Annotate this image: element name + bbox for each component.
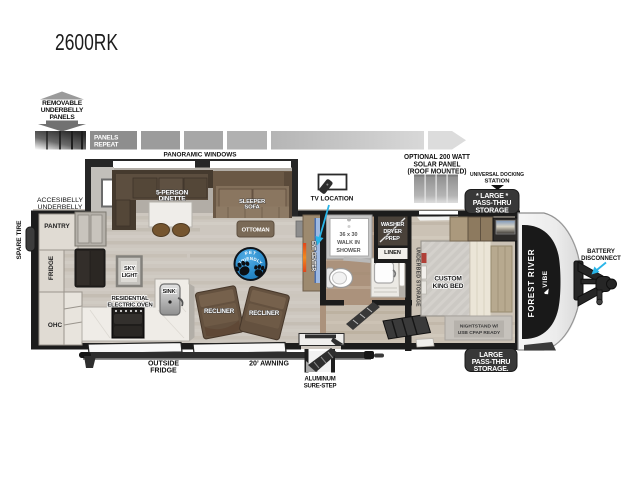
svg-text:LARGE: LARGE xyxy=(479,352,503,359)
svg-text:BATTERY: BATTERY xyxy=(587,249,615,255)
svg-text:NIGHTSTAND W/: NIGHTSTAND W/ xyxy=(460,324,499,330)
svg-text:VIBE: VIBE xyxy=(542,270,549,287)
svg-text:PANTRY: PANTRY xyxy=(44,223,70,230)
svg-text:PREP: PREP xyxy=(385,236,400,242)
svg-text:UNIVERSAL DOCKING: UNIVERSAL DOCKING xyxy=(470,172,524,178)
svg-text:UNDERBED STORAGE: UNDERBED STORAGE xyxy=(415,247,421,307)
svg-text:ACCESIBELLY: ACCESIBELLY xyxy=(37,197,83,204)
svg-text:REMOVABLE: REMOVABLE xyxy=(42,100,83,107)
svg-text:TV LOCATION: TV LOCATION xyxy=(311,196,354,203)
svg-text:20’ AWNING: 20’ AWNING xyxy=(249,361,289,368)
svg-text:SHOWER: SHOWER xyxy=(336,248,360,254)
svg-text:USB CPAP READY: USB CPAP READY xyxy=(458,330,501,336)
svg-text:OUTSIDE: OUTSIDE xyxy=(148,361,179,368)
svg-text:PANELS: PANELS xyxy=(49,114,75,121)
svg-text:SURE-STEP: SURE-STEP xyxy=(304,384,337,390)
svg-text:DINETTE: DINETTE xyxy=(159,196,187,203)
svg-text:SPARE TIRE: SPARE TIRE xyxy=(16,220,23,260)
svg-text:* LARGE *: * LARGE * xyxy=(476,193,509,200)
svg-text:SKY: SKY xyxy=(124,266,135,272)
svg-text:(ROOF MOUNTED): (ROOF MOUNTED) xyxy=(408,166,468,175)
svg-text:STORAGE: STORAGE xyxy=(475,207,509,214)
svg-text:DISCONNECT: DISCONNECT xyxy=(581,256,621,262)
svg-text:PANORAMIC WINDOWS: PANORAMIC WINDOWS xyxy=(163,152,237,159)
svg-text:PASS-THRU: PASS-THRU xyxy=(472,359,511,366)
svg-text:LINEN: LINEN xyxy=(384,250,401,256)
svg-text:UNDERBELLY: UNDERBELLY xyxy=(41,107,84,114)
svg-text:WALK IN: WALK IN xyxy=(337,240,360,246)
svg-text:CUSTOM: CUSTOM xyxy=(434,276,462,283)
svg-text:SOFA: SOFA xyxy=(244,205,260,211)
svg-text:OTTOMAN: OTTOMAN xyxy=(242,228,270,234)
svg-text:STORAGE.: STORAGE. xyxy=(474,366,509,373)
svg-text:2600RK: 2600RK xyxy=(55,29,118,55)
svg-text:LIGHT: LIGHT xyxy=(122,273,139,279)
svg-text:WASHER: WASHER xyxy=(381,222,405,228)
svg-text:FRIDGE: FRIDGE xyxy=(150,368,177,375)
svg-text:REPEAT: REPEAT xyxy=(94,142,119,149)
svg-text:RECLINER: RECLINER xyxy=(249,310,280,317)
svg-text:ALUMINUM: ALUMINUM xyxy=(304,377,335,383)
svg-text:STATION: STATION xyxy=(485,179,510,185)
svg-text:ENT CENTER: ENT CENTER xyxy=(310,241,316,272)
svg-text:PANELS: PANELS xyxy=(94,135,119,142)
svg-text:SINK: SINK xyxy=(162,289,176,295)
svg-text:KING BED: KING BED xyxy=(433,283,464,290)
svg-text:RECLINER: RECLINER xyxy=(204,308,235,315)
svg-text:OHC: OHC xyxy=(48,322,63,329)
svg-text:FRIDGE: FRIDGE xyxy=(48,255,55,280)
svg-text:RESIDENTIAL: RESIDENTIAL xyxy=(111,296,149,302)
svg-text:PASS-THRU: PASS-THRU xyxy=(473,200,512,207)
svg-text:36 x 30: 36 x 30 xyxy=(340,232,358,238)
svg-text:FOREST RIVER: FOREST RIVER xyxy=(527,249,536,318)
svg-text:DRYER: DRYER xyxy=(383,229,402,235)
